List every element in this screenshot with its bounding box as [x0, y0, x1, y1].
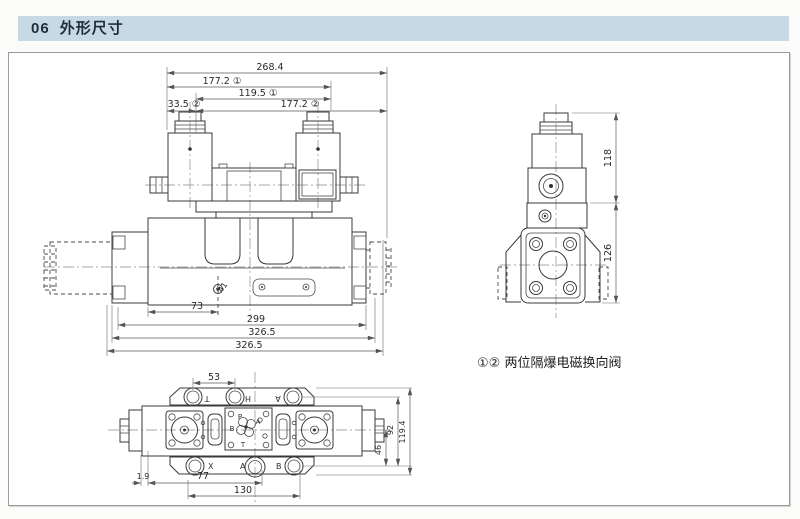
port-label-top-3: A	[275, 394, 281, 403]
nameplate	[299, 170, 336, 199]
side-view: 118 126	[498, 104, 620, 318]
dim-177-1: 177.2 ①	[203, 76, 242, 87]
top-view-centerlines	[108, 372, 392, 502]
port-label-top-2: H	[245, 394, 251, 403]
side-view-solenoid	[528, 113, 586, 203]
left-solenoid-flange	[112, 232, 148, 303]
front-view: 41	[44, 62, 398, 356]
right-solenoid-cap-hidden	[366, 242, 391, 294]
dim-overall-width: 268.4	[256, 62, 283, 73]
adapter-plate	[196, 201, 332, 218]
port-label-bottom-b: B	[276, 462, 282, 471]
port-label-bottom-x: X	[208, 462, 214, 471]
legend-note: ①② 两位隔爆电磁换向阀	[477, 355, 621, 371]
dim-53: 53	[208, 372, 220, 383]
dim-119-4: 119.4	[398, 421, 407, 444]
dim-130: 130	[234, 485, 252, 496]
side-view-centerlines	[500, 104, 608, 318]
dim-119-1: 119.5 ①	[239, 88, 278, 99]
dim-77: 77	[197, 471, 209, 482]
top-view-right-flange	[296, 411, 333, 449]
dim-118: 118	[603, 149, 614, 167]
pilot-port-b: B	[230, 425, 235, 433]
dim-326-outer: 326.5	[235, 340, 262, 351]
pilot-valve-body	[150, 164, 358, 201]
side-view-dimensions: 118 126	[572, 113, 620, 303]
dim-177-2: 177.2 ②	[281, 99, 320, 110]
right-solenoid-flange	[352, 232, 366, 303]
top-view-pilot-interface: P A B T	[201, 408, 296, 450]
pilot-port-a: A	[256, 418, 261, 426]
pilot-port-p: P	[238, 413, 242, 421]
port-label-top-1: T	[204, 394, 210, 403]
dim-73: 73	[191, 301, 203, 312]
dim-299: 299	[247, 314, 265, 325]
side-view-main-face	[498, 228, 608, 303]
top-view-lower-port-strip: X A B	[170, 457, 314, 477]
dim-1-9: 1.9	[137, 472, 150, 481]
dim-33-2: 33.5 ②	[168, 99, 201, 110]
top-view: T H A X A B	[108, 372, 412, 502]
top-view-upper-port-strip: T H A	[170, 388, 314, 406]
dim-126: 126	[603, 244, 614, 262]
top-view-main-body	[120, 406, 384, 456]
dim-326-inner: 326.5	[248, 327, 275, 338]
dim-46: 46	[374, 445, 383, 455]
dimension-drawing: 41	[0, 0, 800, 519]
port-label-bottom-a: A	[240, 462, 246, 471]
side-view-valve-neck	[527, 203, 587, 228]
left-solenoid-tube-hidden	[44, 242, 112, 294]
top-view-left-flange	[166, 411, 203, 449]
pilot-port-t: T	[240, 441, 246, 449]
catalog-page: 06外形尺寸	[0, 0, 800, 519]
dim-92: 92	[386, 425, 395, 435]
